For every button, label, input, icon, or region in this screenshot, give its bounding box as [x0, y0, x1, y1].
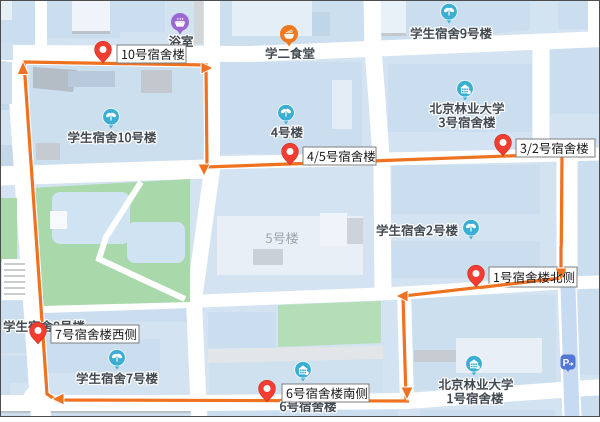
- svg-text:学生宿舍9号楼: 学生宿舍9号楼: [410, 23, 492, 42]
- svg-text:学生宿舍10号楼: 学生宿舍10号楼: [68, 127, 157, 146]
- svg-text:1号宿舍楼北侧: 1号宿舍楼北侧: [493, 267, 575, 286]
- svg-text:3/2号宿舍楼: 3/2号宿舍楼: [520, 138, 589, 157]
- svg-text:学生宿舍7号楼: 学生宿舍7号楼: [76, 368, 158, 387]
- svg-text:4/5号宿舍楼: 4/5号宿舍楼: [307, 146, 376, 165]
- svg-text:3号宿舍楼: 3号宿舍楼: [439, 112, 496, 131]
- svg-text:1号宿舍楼: 1号宿舍楼: [447, 388, 504, 407]
- svg-text:4号楼: 4号楼: [270, 122, 303, 141]
- svg-text:7号宿舍楼西侧: 7号宿舍楼西侧: [55, 324, 137, 343]
- svg-text:学二食堂: 学二食堂: [265, 43, 315, 62]
- svg-text:学生宿舍2号楼: 学生宿舍2号楼: [376, 220, 458, 239]
- svg-text:P: P: [563, 354, 570, 369]
- svg-text:10号宿舍楼: 10号宿舍楼: [121, 44, 185, 63]
- svg-text:5号楼: 5号楼: [265, 228, 298, 247]
- svg-text:6号宿舍楼南侧: 6号宿舍楼南侧: [286, 383, 368, 402]
